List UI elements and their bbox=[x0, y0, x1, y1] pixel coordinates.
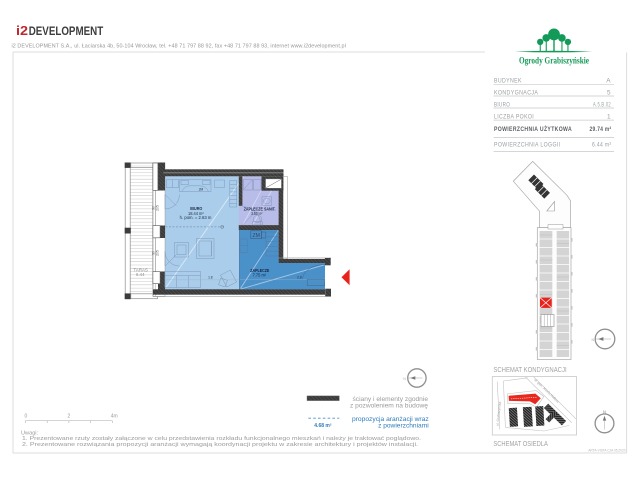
svg-text:i2: i2 bbox=[16, 23, 28, 38]
svg-text:SCHEMAT KONDYGNACJI: SCHEMAT KONDYGNACJI bbox=[493, 365, 566, 374]
svg-text:BIURO: BIURO bbox=[494, 101, 510, 108]
svg-text:2: 2 bbox=[68, 414, 71, 420]
svg-text:205: 205 bbox=[156, 250, 160, 256]
svg-text:SCHEMAT OSIEDLA: SCHEMAT OSIEDLA bbox=[493, 439, 548, 448]
svg-text:A.5.B.02: A.5.B.02 bbox=[593, 101, 611, 108]
svg-text:2.8: 2.8 bbox=[297, 276, 302, 280]
svg-text:i2 DEVELOPMENT S.A., ul. Łacia: i2 DEVELOPMENT S.A., ul. Łaciarska 4b, 5… bbox=[12, 44, 346, 50]
svg-text:ZM: ZM bbox=[252, 233, 260, 239]
svg-text:29.74 m²: 29.74 m² bbox=[590, 126, 612, 133]
svg-text:POWIERZCHNIA UŻYTKOWA: POWIERZCHNIA UŻYTKOWA bbox=[494, 124, 572, 133]
svg-text:N: N bbox=[403, 377, 406, 381]
svg-text:POWIERZCHNIA LOGGII: POWIERZCHNIA LOGGII bbox=[494, 141, 561, 148]
svg-text:2. Prezentowane rozwiązania pr: 2. Prezentowane rozwiązania propozycji a… bbox=[22, 442, 419, 448]
svg-text:N: N bbox=[591, 338, 594, 342]
svg-text:BUDYNEK: BUDYNEK bbox=[494, 78, 522, 85]
svg-text:ARTA-VISTA CJA 05.2020: ARTA-VISTA CJA 05.2020 bbox=[588, 449, 625, 453]
svg-text:1: 1 bbox=[607, 114, 611, 121]
svg-text:0: 0 bbox=[25, 414, 28, 420]
svg-text:7.75 m²: 7.75 m² bbox=[253, 272, 267, 277]
svg-text:LICZBA POKOI: LICZBA POKOI bbox=[494, 114, 534, 121]
svg-text:6.44: 6.44 bbox=[136, 272, 145, 277]
svg-text:ściany i elementy zgodnie: ściany i elementy zgodnie bbox=[353, 397, 429, 403]
svg-text:z pozwoleniem na budowę: z pozwoleniem na budowę bbox=[350, 403, 429, 409]
svg-text:DEVELOPMENT: DEVELOPMENT bbox=[29, 24, 104, 38]
svg-text:propozycja aranżacji wraz: propozycja aranżacji wraz bbox=[352, 417, 429, 423]
svg-text:A: A bbox=[606, 78, 611, 85]
svg-text:3.50 m²: 3.50 m² bbox=[251, 211, 263, 216]
svg-text:2M: 2M bbox=[199, 187, 204, 191]
svg-text:205: 205 bbox=[156, 205, 160, 211]
svg-text:N: N bbox=[603, 410, 606, 415]
svg-text:6.44 m²: 6.44 m² bbox=[592, 141, 612, 148]
svg-text:4m: 4m bbox=[111, 414, 118, 420]
svg-text:1.8: 1.8 bbox=[208, 276, 213, 280]
svg-text:Ogrody Grabiszyńskie: Ogrody Grabiszyńskie bbox=[519, 56, 589, 66]
svg-text:KONDYGNACJA: KONDYGNACJA bbox=[494, 89, 539, 96]
svg-text:z powierzchniami: z powierzchniami bbox=[378, 423, 429, 429]
svg-text:h. pom. = 2.63 m: h. pom. = 2.63 m bbox=[180, 215, 212, 220]
svg-text:5: 5 bbox=[607, 89, 611, 96]
svg-text:4.68 m²: 4.68 m² bbox=[314, 423, 332, 429]
